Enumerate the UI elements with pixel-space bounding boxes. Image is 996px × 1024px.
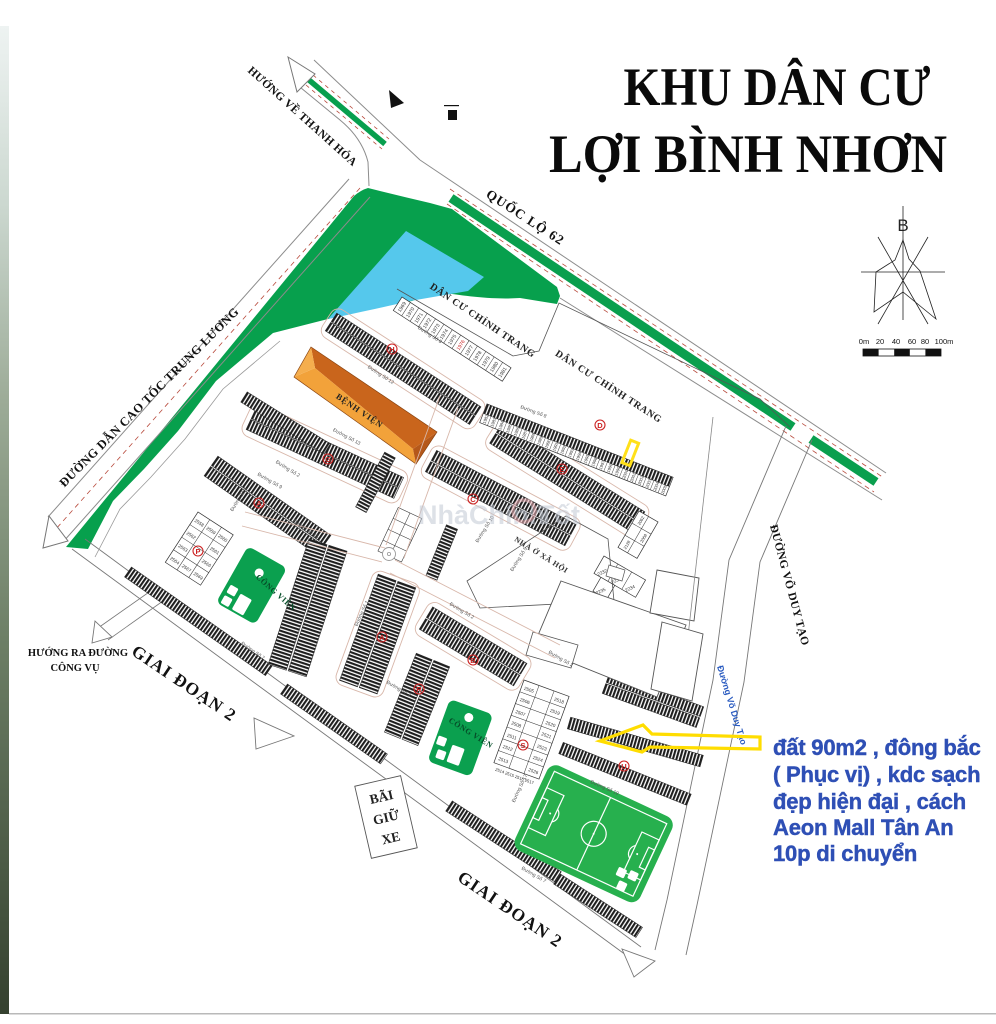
- svg-text:B: B: [897, 216, 908, 235]
- svg-text:10p di chuyển: 10p di chuyển: [773, 841, 917, 866]
- svg-text:H: H: [389, 345, 394, 354]
- svg-text:A: A: [256, 499, 262, 508]
- svg-text:20: 20: [876, 337, 884, 346]
- svg-text:80: 80: [921, 337, 929, 346]
- svg-text:LỢI BÌNH NHƠN: LỢI BÌNH NHƠN: [549, 124, 947, 184]
- svg-text:G: G: [325, 455, 331, 464]
- svg-text:60: 60: [908, 337, 916, 346]
- svg-text:Aeon Mall Tân An: Aeon Mall Tân An: [773, 815, 954, 840]
- svg-text:S: S: [520, 741, 525, 750]
- svg-text:P: P: [195, 547, 200, 556]
- svg-text:( Phục vị) , kdc sạch: ( Phục vị) , kdc sạch: [773, 762, 980, 787]
- svg-text:40: 40: [892, 337, 900, 346]
- svg-text:KHU DÂN CƯ: KHU DÂN CƯ: [624, 57, 931, 117]
- svg-text:U: U: [621, 762, 626, 771]
- svg-text:R: R: [416, 685, 422, 694]
- svg-text:HƯỚNG RA ĐƯỜNG: HƯỚNG RA ĐƯỜNG: [28, 647, 128, 659]
- svg-text:Tốt: Tốt: [538, 500, 580, 530]
- svg-text:B: B: [470, 656, 476, 665]
- svg-text:E: E: [559, 465, 564, 474]
- svg-text:đẹp hiện đại , cách: đẹp hiện đại , cách: [773, 789, 966, 814]
- svg-text:D: D: [597, 421, 603, 430]
- svg-text:A: A: [379, 633, 385, 642]
- svg-text:0m: 0m: [859, 337, 869, 346]
- svg-text:100m: 100m: [935, 337, 954, 346]
- svg-text:đất 90m2 , đông bắc: đất 90m2 , đông bắc: [773, 735, 981, 760]
- svg-text:CÔNG VỤ: CÔNG VỤ: [50, 661, 100, 674]
- svg-text:NhàChính: NhàChính: [418, 500, 546, 530]
